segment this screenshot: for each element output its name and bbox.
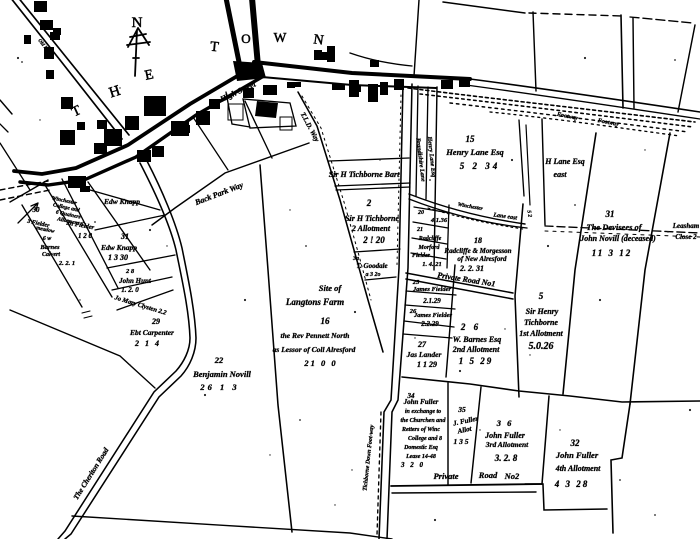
svg-text:Henry Lane Esq: Henry Lane Esq — [445, 147, 504, 157]
svg-text:James Fielder: James Fielder — [412, 286, 452, 293]
svg-text:Jas Lander: Jas Lander — [406, 350, 442, 359]
svg-text:Benjamin Novill: Benjamin Novill — [192, 369, 251, 379]
svg-text:Site of: Site of — [319, 283, 343, 293]
svg-text:as Lessor of Coll Alresford: as Lessor of Coll Alresford — [273, 345, 356, 354]
svg-text:3 2 0: 3 2 0 — [400, 461, 425, 469]
svg-text:5.0.26: 5.0.26 — [529, 341, 554, 352]
svg-text:2.2.29: 2.2.29 — [420, 320, 439, 328]
svg-text:N: N — [132, 15, 143, 31]
svg-text:6 w: 6 w — [43, 236, 53, 242]
svg-text:5 2: 5 2 — [525, 210, 532, 218]
svg-text:11 3 12: 11 3 12 — [592, 248, 633, 258]
svg-text:O: O — [241, 31, 250, 46]
svg-text:Leasham: Leasham — [672, 222, 700, 230]
svg-text:32: 32 — [570, 438, 581, 448]
svg-text:29: 29 — [151, 317, 160, 326]
svg-text:W. Barnes Esq: W. Barnes Esq — [453, 335, 502, 344]
svg-text:John Hunt: John Hunt — [118, 277, 152, 285]
svg-text:2: 2 — [366, 198, 372, 208]
svg-text:College and 8: College and 8 — [408, 436, 442, 442]
svg-text:Close 2: Close 2 — [675, 233, 697, 241]
svg-text:1 5 29: 1 5 29 — [459, 356, 494, 366]
svg-text:John Novill (deceased): John Novill (deceased) — [579, 234, 656, 243]
svg-text:Road: Road — [478, 470, 498, 480]
svg-text:John Fuller: John Fuller — [403, 398, 439, 406]
svg-text:John Fuller: John Fuller — [484, 431, 526, 440]
svg-text:a 3 2o: a 3 2o — [366, 272, 381, 278]
svg-text:20: 20 — [417, 210, 424, 216]
svg-text:1 2 0: 1 2 0 — [78, 232, 93, 240]
svg-text:2 Allotment: 2 Allotment — [351, 224, 391, 233]
svg-text:1 1 29: 1 1 29 — [417, 360, 437, 369]
svg-text:1. 2. 0: 1. 2. 0 — [121, 286, 139, 294]
svg-text:Ebt Carpenter: Ebt Carpenter — [129, 328, 174, 337]
svg-text:N: N — [312, 32, 324, 48]
svg-text:Sir Henry: Sir Henry — [526, 307, 559, 316]
svg-text:27: 27 — [417, 340, 427, 349]
svg-text:4.1.36: 4.1.36 — [430, 217, 448, 224]
svg-text:31: 31 — [120, 232, 129, 241]
svg-text:Calvert: Calvert — [42, 252, 60, 258]
svg-text:No2: No2 — [504, 471, 520, 481]
svg-text:John Fuller: John Fuller — [555, 450, 599, 460]
svg-text:Retters of Winc: Retters of Winc — [401, 427, 440, 433]
svg-text:35: 35 — [457, 405, 466, 414]
svg-text:Sir H Tichborne Bart: Sir H Tichborne Bart — [329, 170, 400, 179]
svg-text:5 2 34: 5 2 34 — [460, 161, 501, 171]
svg-text:Radcliffe & Morgesson: Radcliffe & Morgesson — [443, 247, 511, 255]
svg-text:2. 2. 1: 2. 2. 1 — [58, 260, 75, 267]
svg-text:Tichborne: Tichborne — [524, 318, 558, 327]
svg-text:4th Allotment: 4th Allotment — [555, 464, 602, 473]
svg-text:15: 15 — [466, 134, 476, 144]
svg-text:W: W — [274, 30, 287, 45]
svg-text:2. 2. 31: 2. 2. 31 — [459, 264, 484, 273]
svg-text:3. 2. 8: 3. 2. 8 — [494, 453, 518, 463]
svg-text:1. 4. 21: 1. 4. 21 — [422, 261, 442, 268]
svg-text:Lease 14-48: Lease 14-48 — [405, 454, 436, 460]
svg-text:2.1.29: 2.1.29 — [422, 297, 441, 305]
svg-text:21: 21 — [416, 227, 423, 233]
svg-text:Morford: Morford — [417, 245, 440, 251]
svg-text:James Fielder: James Fielder — [413, 312, 453, 319]
svg-text:16: 16 — [321, 316, 331, 326]
svg-text:T. Goodale: T. Goodale — [356, 262, 387, 270]
svg-text:1 3 5: 1 3 5 — [454, 437, 469, 446]
svg-text:2 ! 20: 2 ! 20 — [362, 235, 385, 245]
svg-text:2nd Allotment: 2nd Allotment — [452, 345, 500, 354]
svg-text:1st Allotment: 1st Allotment — [519, 329, 563, 338]
svg-text:Fielder: Fielder — [412, 253, 431, 259]
svg-text:in exchange to: in exchange to — [405, 409, 441, 415]
svg-text:4 3 28: 4 3 28 — [554, 479, 590, 489]
svg-text:2 6: 2 6 — [460, 322, 481, 332]
svg-text:Radcliffe: Radcliffe — [418, 236, 442, 242]
svg-text:H Lane Esq: H Lane Esq — [544, 157, 585, 166]
svg-text:Private: Private — [433, 471, 458, 481]
svg-text:30: 30 — [32, 206, 41, 214]
svg-text:26 1 3: 26 1 3 — [199, 382, 239, 392]
svg-text:Barnes: Barnes — [39, 244, 60, 251]
svg-text:Edw Knapp: Edw Knapp — [100, 243, 137, 252]
svg-text:3rd Allotment: 3rd Allotment — [485, 440, 529, 449]
svg-text:Edw Knapp: Edw Knapp — [103, 197, 140, 206]
svg-text:1 3 30: 1 3 30 — [108, 253, 128, 262]
svg-text:21 0 0: 21 0 0 — [303, 358, 337, 368]
svg-text:25: 25 — [412, 279, 420, 286]
svg-text:31: 31 — [605, 209, 615, 219]
svg-text:18: 18 — [474, 236, 482, 245]
svg-text:east: east — [554, 170, 568, 179]
svg-text:the Rev Pennett North: the Rev Pennett North — [281, 331, 350, 340]
svg-text:Sir H Tichborne: Sir H Tichborne — [345, 214, 399, 223]
svg-text:3 6: 3 6 — [496, 418, 514, 428]
svg-text:The Devisees of: The Devisees of — [586, 222, 642, 232]
svg-text:2 8: 2 8 — [125, 268, 135, 275]
svg-text:of New Alresford: of New Alresford — [457, 255, 507, 263]
svg-text:2 1 4: 2 1 4 — [134, 339, 161, 348]
svg-text:22: 22 — [214, 355, 224, 365]
svg-text:Domestic Esq: Domestic Esq — [403, 445, 438, 451]
svg-text:Langtons Farm: Langtons Farm — [285, 297, 344, 307]
svg-text:the Churchen and: the Churchen and — [400, 418, 446, 424]
svg-text:5: 5 — [539, 291, 544, 301]
